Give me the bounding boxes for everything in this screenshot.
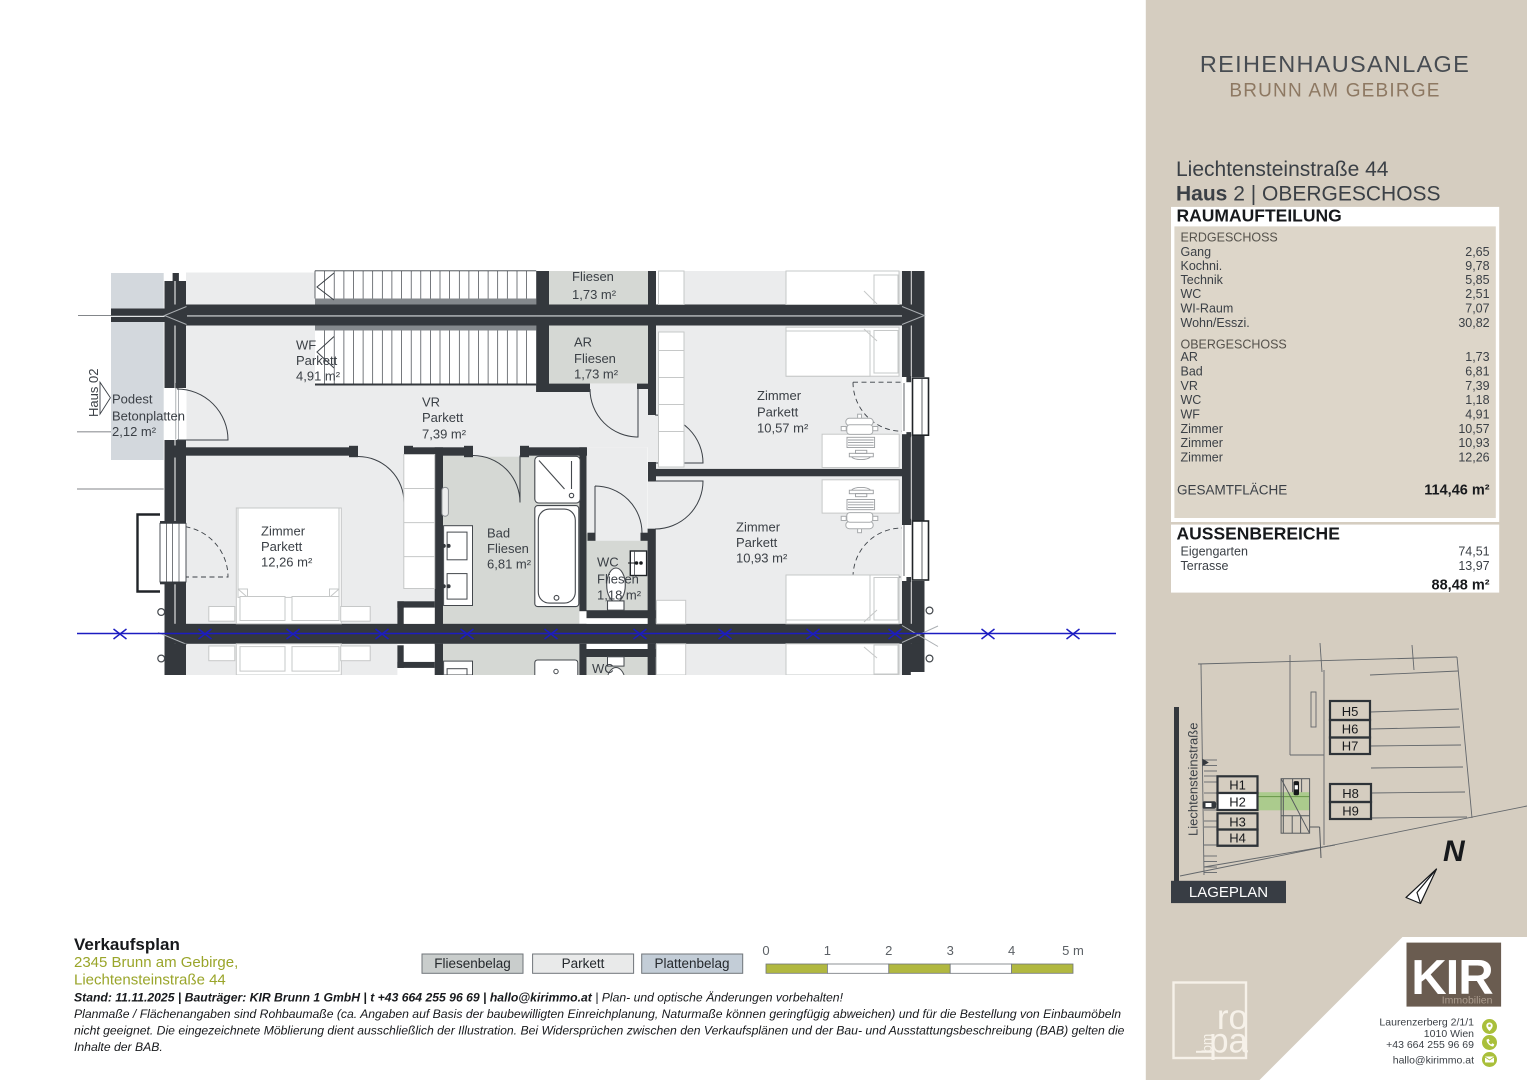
svg-text:H7: H7 [1342,739,1359,754]
svg-text:6,81: 6,81 [1465,365,1489,379]
svg-text:Podest: Podest [112,392,153,407]
svg-text:0: 0 [762,943,769,958]
svg-text:1,18 m²: 1,18 m² [597,588,642,603]
svg-text:7,39: 7,39 [1465,379,1489,393]
svg-text:H1: H1 [1229,778,1246,793]
svg-text:5,85: 5,85 [1465,273,1489,287]
svg-text:10,93: 10,93 [1458,436,1489,450]
svg-text:Zimmer: Zimmer [757,388,802,403]
svg-text:WC: WC [597,555,619,570]
svg-text:Technik: Technik [1181,273,1224,287]
svg-text:Parkett: Parkett [296,353,338,368]
svg-text:REIHENHAUSANLAGE: REIHENHAUSANLAGE [1200,51,1470,77]
svg-text:2345 Brunn am Gebirge,: 2345 Brunn am Gebirge, [74,954,238,971]
svg-text:Inhalte der BAB.: Inhalte der BAB. [74,1040,163,1054]
svg-text:10,57 m²: 10,57 m² [757,421,809,436]
svg-text:Laurenzerberg 2/1/1: Laurenzerberg 2/1/1 [1379,1017,1474,1029]
svg-text:5 m: 5 m [1062,943,1084,958]
svg-text:7,07: 7,07 [1465,302,1489,316]
svg-text:VR: VR [1181,379,1198,393]
svg-text:Liechtensteinstraße 44: Liechtensteinstraße 44 [74,972,226,989]
svg-text:4: 4 [1008,943,1015,958]
svg-text:Zimmer: Zimmer [261,524,306,539]
svg-text:H3: H3 [1229,815,1246,830]
svg-text:WI-Raum: WI-Raum [1181,302,1234,316]
svg-text:WC: WC [1181,287,1202,301]
svg-text:2: 2 [885,943,892,958]
svg-text:10,93 m²: 10,93 m² [736,551,788,566]
svg-text:Stand: 11.11.2025 | Bauträger:: Stand: 11.11.2025 | Bauträger: KIR Brunn… [74,991,844,1005]
svg-text:H9: H9 [1342,804,1359,819]
svg-text:+43 664 255 96 69: +43 664 255 96 69 [1386,1039,1474,1051]
svg-text:VR: VR [422,395,440,410]
svg-text:WC: WC [1181,393,1202,407]
svg-text:10,57: 10,57 [1458,422,1489,436]
svg-text:Zimmer: Zimmer [1181,436,1223,450]
svg-text:H5: H5 [1342,704,1359,719]
svg-text:1,73 m²: 1,73 m² [572,287,617,302]
svg-text:88,48 m²: 88,48 m² [1432,578,1490,594]
svg-text:nicht geeignet. Die eingezeich: nicht geeignet. Die eingezeichnete Möbli… [74,1024,1125,1038]
svg-text:AR: AR [574,335,592,350]
svg-text:3: 3 [947,943,954,958]
svg-text:Plattenbelag: Plattenbelag [654,956,729,971]
svg-text:Fliesen: Fliesen [487,541,529,556]
svg-text:RAUMAUFTEILUNG: RAUMAUFTEILUNG [1177,206,1342,226]
svg-text:ERDGESCHOSS: ERDGESCHOSS [1181,231,1278,245]
svg-text:Planmaße / Flächenangaben sind: Planmaße / Flächenangaben sind Rohbaumaß… [74,1007,1121,1021]
svg-text:Haus 02: Haus 02 [86,369,101,417]
svg-text:pa: pa [1209,1022,1248,1061]
svg-text:12,26: 12,26 [1458,451,1489,465]
svg-text:Immobilien: Immobilien [1442,995,1493,1007]
svg-text:H6: H6 [1342,722,1359,737]
svg-text:WF: WF [296,338,316,353]
svg-text:Zimmer: Zimmer [736,520,781,535]
svg-text:Bad: Bad [487,526,510,541]
svg-text:Verkaufsplan: Verkaufsplan [74,935,180,954]
svg-text:7,39 m²: 7,39 m² [422,427,467,442]
svg-text:2,12 m²: 2,12 m² [112,424,157,439]
svg-text:Gang: Gang [1181,245,1212,259]
svg-text:74,51: 74,51 [1458,545,1489,559]
svg-text:Zimmer: Zimmer [1181,451,1223,465]
svg-text:H4: H4 [1229,831,1246,846]
svg-text:1,18: 1,18 [1465,393,1489,407]
svg-text:H8: H8 [1342,786,1359,801]
svg-text:Parkett: Parkett [757,404,799,419]
svg-text:H2: H2 [1229,795,1246,810]
svg-text:N: N [1443,835,1466,868]
svg-text:30,82: 30,82 [1458,316,1489,330]
svg-text:AR: AR [1181,350,1198,364]
svg-text:Liechtensteinstraße: Liechtensteinstraße [1186,723,1201,836]
svg-text:Kochni.: Kochni. [1181,259,1223,273]
svg-text:Betonplatten: Betonplatten [112,409,185,424]
svg-text:Eigengarten: Eigengarten [1181,545,1248,559]
svg-text:bm: bm [1200,1034,1215,1053]
svg-text:Fliesen: Fliesen [597,572,639,587]
svg-text:Liechtensteinstraße 44: Liechtensteinstraße 44 [1176,158,1389,181]
svg-text:BRUNN AM GEBIRGE: BRUNN AM GEBIRGE [1229,81,1440,102]
svg-text:Wohn/Esszi.: Wohn/Esszi. [1181,316,1250,330]
svg-text:Terrasse: Terrasse [1181,559,1229,573]
svg-text:Parkett: Parkett [261,539,303,554]
svg-text:LAGEPLAN: LAGEPLAN [1189,884,1268,901]
svg-text:2,51: 2,51 [1465,287,1489,301]
svg-text:hallo@kirimmo.at: hallo@kirimmo.at [1393,1055,1474,1067]
svg-text:Fliesen: Fliesen [574,351,616,366]
svg-text:1,73 m²: 1,73 m² [574,367,619,382]
svg-text:Haus 2 | OBERGESCHOSS: Haus 2 | OBERGESCHOSS [1176,183,1441,206]
svg-text:13,97: 13,97 [1458,559,1489,573]
svg-text:AUSSENBEREICHE: AUSSENBEREICHE [1177,524,1340,544]
svg-text:1: 1 [824,943,831,958]
svg-text:Fliesenbelag: Fliesenbelag [434,956,511,971]
svg-text:Zimmer: Zimmer [1181,422,1223,436]
svg-text:9,78: 9,78 [1465,259,1489,273]
svg-text:Bad: Bad [1181,365,1203,379]
svg-text:Parkett: Parkett [422,410,464,425]
svg-text:WF: WF [1181,408,1201,422]
svg-text:114,46 m²: 114,46 m² [1424,483,1489,499]
svg-text:1,73: 1,73 [1465,350,1489,364]
svg-text:4,91 m²: 4,91 m² [296,369,341,384]
svg-text:Parkett: Parkett [736,535,778,550]
svg-text:GESAMTFLÄCHE: GESAMTFLÄCHE [1177,483,1287,498]
svg-text:WC: WC [592,661,614,676]
svg-text:Fliesen: Fliesen [572,269,614,284]
svg-text:Parkett: Parkett [562,956,605,971]
svg-text:6,81 m²: 6,81 m² [487,557,532,572]
svg-text:4,91: 4,91 [1465,408,1489,422]
svg-text:2,65: 2,65 [1465,245,1489,259]
svg-text:12,26 m²: 12,26 m² [261,555,313,570]
